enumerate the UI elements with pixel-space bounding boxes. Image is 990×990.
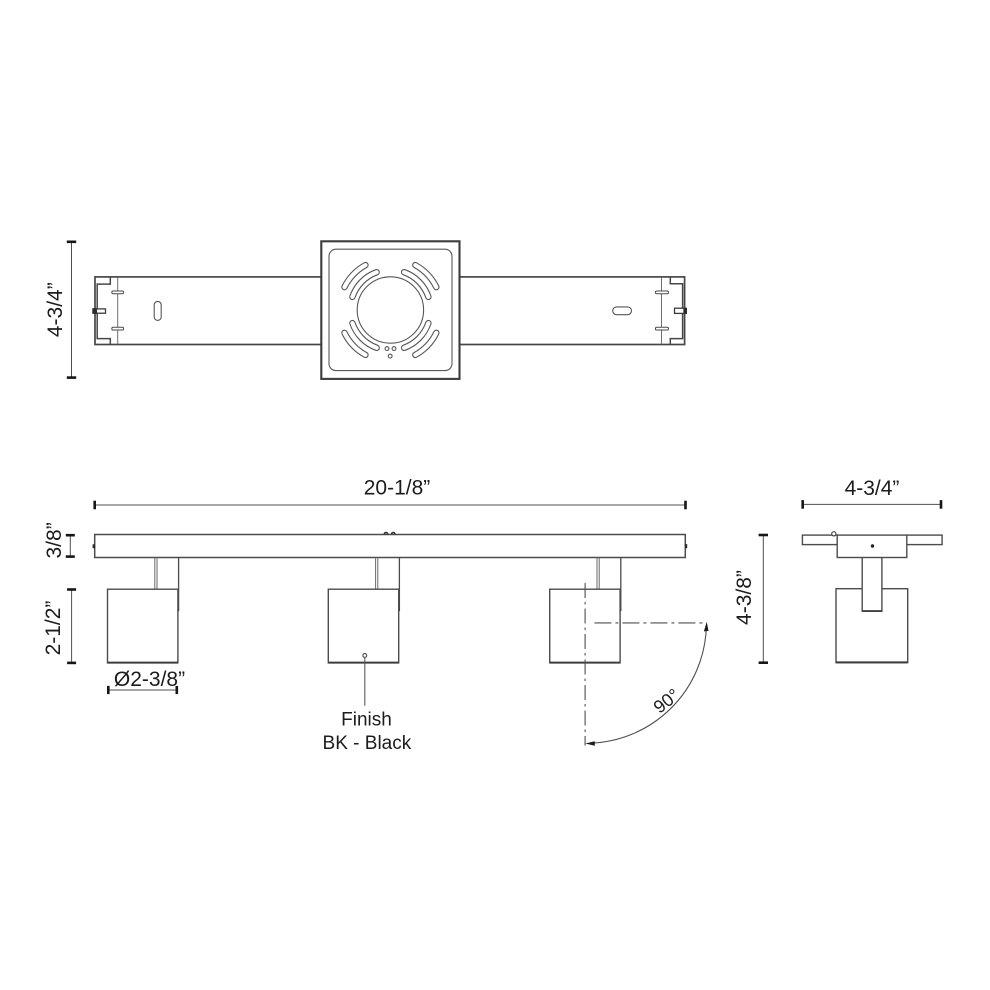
svg-text:Finish: Finish: [341, 710, 392, 731]
svg-text:4-3/4”: 4-3/4”: [845, 477, 900, 500]
svg-text:4-3/4”: 4-3/4”: [44, 282, 67, 337]
svg-text:BK - Black: BK - Black: [323, 733, 412, 754]
svg-text:3/8”: 3/8”: [43, 522, 66, 558]
svg-text:Ø2-3/8”: Ø2-3/8”: [114, 668, 185, 691]
svg-text:2-1/2”: 2-1/2”: [42, 601, 65, 656]
svg-text:4-3/8”: 4-3/8”: [733, 570, 756, 625]
svg-text:20-1/8”: 20-1/8”: [364, 477, 431, 500]
